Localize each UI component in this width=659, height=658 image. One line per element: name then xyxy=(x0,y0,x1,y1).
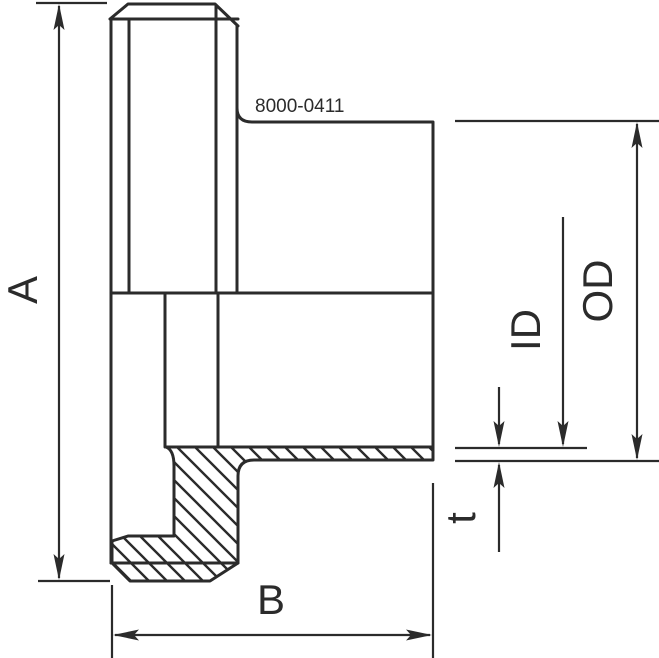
dimension-a-label: A xyxy=(0,276,46,304)
dimension-od-label: OD xyxy=(574,260,621,323)
dimension-t-label: t xyxy=(437,512,484,524)
dimension-id-label: ID xyxy=(502,309,549,351)
dimension-b-label: B xyxy=(257,576,285,623)
part-number-label: 8000-0411 xyxy=(255,96,344,117)
technical-drawing: A B OD ID t 8000-0411 xyxy=(0,0,659,658)
